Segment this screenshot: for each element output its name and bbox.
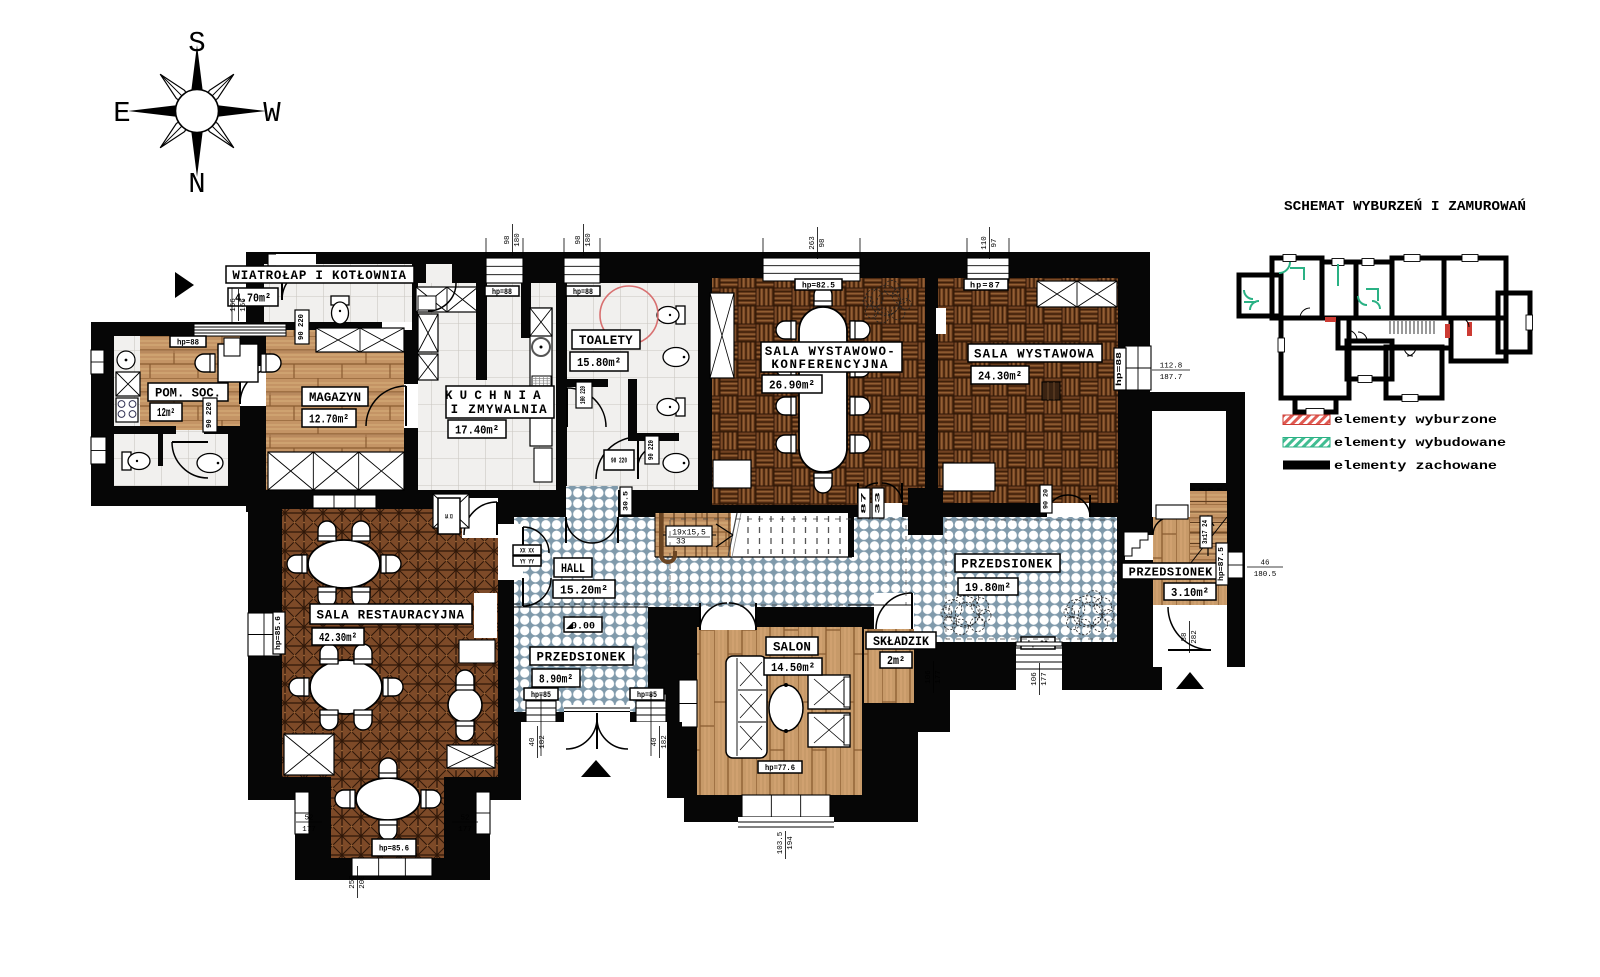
svg-text:177: 177 <box>1041 672 1049 686</box>
svg-text:WIATROŁAP I KOTŁOWNIA: WIATROŁAP I KOTŁOWNIA <box>232 269 406 283</box>
svg-text:W: W <box>263 97 281 130</box>
svg-text:250: 250 <box>349 875 357 889</box>
svg-text:187.7: 187.7 <box>1160 374 1183 382</box>
svg-text:33: 33 <box>676 538 686 547</box>
svg-text:KUCHNIA: KUCHNIA <box>445 389 548 403</box>
svg-text:PRZEDSIONEK: PRZEDSIONEK <box>1129 565 1214 579</box>
svg-text:33: 33 <box>875 492 882 514</box>
svg-text:166: 166 <box>240 298 248 312</box>
svg-text:I ZMYWALNIA: I ZMYWALNIA <box>451 403 548 417</box>
svg-text:194: 194 <box>787 836 795 850</box>
svg-text:hp=77.6: hp=77.6 <box>765 763 795 773</box>
svg-text:hp=85: hp=85 <box>637 690 657 700</box>
svg-text:90 220: 90 220 <box>298 314 306 340</box>
svg-text:0.00: 0.00 <box>571 620 595 632</box>
svg-text:elementy wybudowane: elementy wybudowane <box>1334 437 1506 450</box>
svg-text:97: 97 <box>991 238 999 247</box>
svg-text:PRZEDSIONEK: PRZEDSIONEK <box>537 651 626 665</box>
svg-text:98: 98 <box>819 238 827 247</box>
svg-text:SCHEMAT WYBURZEŃ I ZAMUROWAŃ: SCHEMAT WYBURZEŃ I ZAMUROWAŃ <box>1284 199 1526 215</box>
svg-text:87: 87 <box>861 492 868 514</box>
svg-text:15.80m²: 15.80m² <box>577 356 621 370</box>
svg-text:90 220: 90 220 <box>648 440 656 460</box>
svg-text:182: 182 <box>661 735 669 749</box>
svg-text:156: 156 <box>230 298 238 312</box>
svg-text:177: 177 <box>302 826 316 834</box>
svg-text:12.70m²: 12.70m² <box>309 412 349 426</box>
svg-text:90 220: 90 220 <box>611 458 627 466</box>
svg-text:YY YY: YY YY <box>520 558 534 565</box>
svg-text:E: E <box>113 97 130 130</box>
svg-text:30.5: 30.5 <box>623 491 630 511</box>
svg-text:106: 106 <box>925 670 933 684</box>
svg-text:180.5: 180.5 <box>1254 571 1277 579</box>
svg-text:SALA WYSTAWOWA: SALA WYSTAWOWA <box>974 348 1095 362</box>
svg-text:180: 180 <box>514 233 522 247</box>
svg-text:MAGAZYN: MAGAZYN <box>309 391 361 405</box>
svg-text:hp=87: hp=87 <box>970 281 1001 291</box>
svg-text:N: N <box>188 168 205 201</box>
svg-text:90 20: 90 20 <box>1043 489 1050 509</box>
svg-text:SKŁADZIK: SKŁADZIK <box>873 635 929 649</box>
svg-text:hp=87.5: hp=87.5 <box>1218 546 1226 581</box>
svg-text:180: 180 <box>585 233 593 247</box>
svg-text:3.10m²: 3.10m² <box>1171 586 1209 600</box>
svg-text:15.20m²: 15.20m² <box>560 583 608 597</box>
svg-text:263: 263 <box>809 236 817 250</box>
svg-text:106: 106 <box>1031 672 1039 686</box>
svg-text:98: 98 <box>575 235 583 244</box>
svg-text:182: 182 <box>539 735 547 749</box>
svg-text:40: 40 <box>529 737 537 747</box>
svg-text:hp=88: hp=88 <box>177 338 199 348</box>
svg-text:hp=85.6: hp=85.6 <box>275 615 283 650</box>
svg-text:hp=88: hp=88 <box>492 287 512 297</box>
svg-text:112.8: 112.8 <box>1160 363 1183 371</box>
svg-text:110: 110 <box>981 236 989 250</box>
svg-text:12m²: 12m² <box>157 407 175 420</box>
svg-text:103.5: 103.5 <box>777 831 785 854</box>
svg-text:SALA WYSTAWOWO-: SALA WYSTAWOWO- <box>765 345 896 359</box>
svg-text:26.90m²: 26.90m² <box>769 378 815 392</box>
svg-text:19x15,5: 19x15,5 <box>672 529 706 538</box>
svg-text:XX XX: XX XX <box>520 547 534 554</box>
svg-text:46: 46 <box>1260 560 1270 568</box>
svg-text:SALON: SALON <box>773 641 811 655</box>
svg-text:elementy wyburzone: elementy wyburzone <box>1334 414 1497 427</box>
svg-text:17.40m²: 17.40m² <box>455 423 499 437</box>
svg-text:hp=85.6: hp=85.6 <box>379 844 409 854</box>
svg-text:14.50m²: 14.50m² <box>771 661 815 675</box>
svg-text:40: 40 <box>651 737 659 747</box>
svg-text:PRZEDSIONEK: PRZEDSIONEK <box>961 558 1053 572</box>
svg-text:19.80m²: 19.80m² <box>965 581 1011 595</box>
svg-text:100 220: 100 220 <box>580 386 588 404</box>
svg-text:200: 200 <box>359 875 367 889</box>
svg-text:282: 282 <box>1191 630 1199 644</box>
svg-text:177: 177 <box>935 670 943 684</box>
svg-text:TOALETY: TOALETY <box>579 334 633 348</box>
svg-text:SALA RESTAURACYJNA: SALA RESTAURACYJNA <box>316 609 464 623</box>
svg-text:HALL: HALL <box>561 562 585 576</box>
svg-text:KONFERENCYJNA: KONFERENCYJNA <box>771 358 889 372</box>
svg-text:88: 88 <box>1181 632 1189 641</box>
svg-text:90 220: 90 220 <box>206 402 214 428</box>
svg-text:177: 177 <box>458 826 472 834</box>
svg-text:52: 52 <box>304 815 313 823</box>
svg-text:hp=82.5: hp=82.5 <box>802 281 835 291</box>
svg-text:98: 98 <box>504 235 512 244</box>
svg-text:3x17 24: 3x17 24 <box>1202 520 1210 544</box>
svg-text:24.30m²: 24.30m² <box>978 369 1022 383</box>
svg-text:52: 52 <box>460 815 469 823</box>
svg-text:elementy zachowane: elementy zachowane <box>1334 460 1497 473</box>
svg-text:42.30m²: 42.30m² <box>319 631 357 645</box>
svg-text:hp=88: hp=88 <box>1116 351 1124 386</box>
svg-text:hp=88: hp=88 <box>573 287 593 297</box>
svg-text:S: S <box>188 27 205 60</box>
svg-text:AA XX: AA XX <box>445 513 453 520</box>
svg-text:8.90m²: 8.90m² <box>539 672 573 686</box>
svg-text:2m²: 2m² <box>887 655 905 668</box>
